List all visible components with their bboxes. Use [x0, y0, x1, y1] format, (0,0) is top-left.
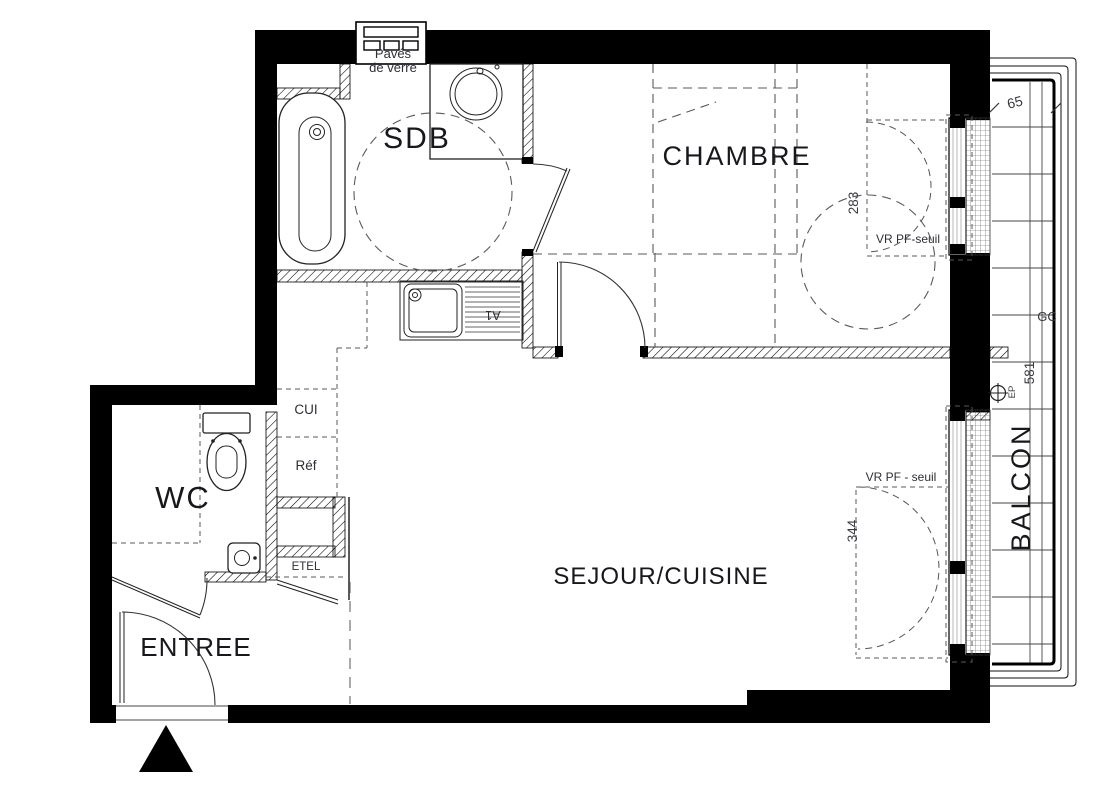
window-threshold-grating [966, 410, 990, 655]
floor-plan-drawing: Pavés de verre [0, 0, 1120, 800]
ep-label: EP [1007, 386, 1018, 399]
glass-block-window: Pavés de verre [356, 22, 426, 75]
sdb-door-jamb [522, 157, 533, 164]
room-label-wc: WC [155, 480, 211, 515]
wall-duct-bottom [277, 546, 335, 557]
entry-direction-triangle-icon [139, 725, 193, 772]
cui-label: CUI [294, 402, 317, 417]
gc-label: GC [1037, 309, 1057, 324]
sdb-door-jamb [522, 249, 533, 256]
room-label-balcon: BALCON [1006, 422, 1036, 551]
wall-bottom-right [747, 690, 950, 723]
chambre-door-jamb [555, 346, 563, 357]
wall-bottom-main [228, 705, 747, 723]
window-hinge-block [950, 410, 965, 421]
wall-sdb-right-lower [522, 252, 533, 348]
chambre-room [533, 64, 935, 357]
wall-right-top [950, 64, 990, 120]
ref-label: Réf [295, 458, 316, 473]
window-frame [949, 118, 966, 255]
vr-sejour-label: VR PF - seuil [866, 470, 937, 484]
wall-chambre-door-stub [533, 347, 558, 358]
sdb-door-swing [533, 164, 567, 171]
etel-door-leaf [277, 580, 338, 600]
bathtub [279, 93, 345, 264]
chambre-door-swing [559, 262, 645, 348]
wc-door-leaf [112, 577, 200, 615]
room-label-sejour: SEJOUR/CUISINE [553, 563, 768, 590]
wall-duct-top [277, 497, 335, 508]
wall-niche-right [340, 64, 350, 99]
glass-block [364, 27, 418, 37]
paves-label-line1: Pavés [375, 46, 412, 61]
room-label-entree: ENTREE [140, 632, 251, 662]
window-hinge-block [950, 644, 965, 655]
window-hinge-block [950, 561, 965, 574]
sejour-window-dimension: 344 [845, 519, 860, 542]
wall-top-right [426, 30, 990, 64]
hand-basin-faucet-icon [253, 556, 257, 560]
sink-faucet-icon [413, 293, 418, 298]
window-frame [949, 410, 966, 655]
bed-pillow-dash [658, 102, 716, 122]
dimension-tick [989, 103, 999, 113]
window-threshold-grating [966, 118, 990, 255]
room-label-sdb: SDB [383, 122, 451, 155]
sejour-window: 344 VR PF - seuil [845, 406, 990, 662]
entree-room [116, 582, 350, 772]
wc-door-swing [200, 578, 207, 615]
balcony-length-dimension: 581 [1022, 362, 1037, 385]
toilet-bolt-icon [211, 439, 215, 443]
chambre-door-jamb [640, 346, 648, 357]
etel-door-leaf [277, 584, 338, 604]
wall-right-mid [950, 253, 990, 412]
window-hinge-block [950, 244, 965, 254]
vr-chambre-label: VR PF-seuil [876, 232, 940, 246]
window-swing-arc [858, 487, 939, 649]
wall-wc-step [90, 385, 277, 405]
balcony-divider-stub [990, 347, 1008, 358]
kitchen-sink [409, 289, 457, 332]
wall-chambre-sejour [643, 347, 950, 358]
etel-label: ETEL [292, 561, 321, 573]
exterior-walls [90, 30, 990, 723]
toilet-bolt-icon [238, 439, 242, 443]
wall-top-left [255, 30, 356, 64]
wall-duct-right [333, 497, 345, 557]
sdb-door-leaf [533, 168, 567, 251]
wall-sdb-bottom [277, 270, 522, 282]
paves-label-line2: de verre [369, 60, 417, 75]
kitchen-sink [404, 284, 462, 337]
room-label-chambre: CHAMBRE [662, 141, 811, 171]
sdb-door-leaf [536, 169, 570, 252]
window-hinge-block [950, 118, 965, 128]
window-hinge-block [950, 197, 965, 208]
chambre-window-dimension: 283 [846, 192, 861, 215]
wall-sdb-right-upper [522, 64, 533, 163]
sink-faucet-icon [409, 289, 421, 301]
balcony-depth-dimension: 65 [1005, 92, 1024, 111]
balcony: 65 GC 581 EP [988, 58, 1076, 686]
pillar-bottom-right [950, 653, 990, 723]
toilet-tank [203, 413, 250, 433]
wall-wc-right [266, 412, 277, 580]
a1-label: A1 [485, 308, 500, 322]
floor-plan-page: Pavés de verre [0, 0, 1120, 800]
wall-left-upper [255, 64, 277, 405]
wall-left-lower [90, 405, 112, 723]
chambre-turning-circle [801, 195, 935, 329]
